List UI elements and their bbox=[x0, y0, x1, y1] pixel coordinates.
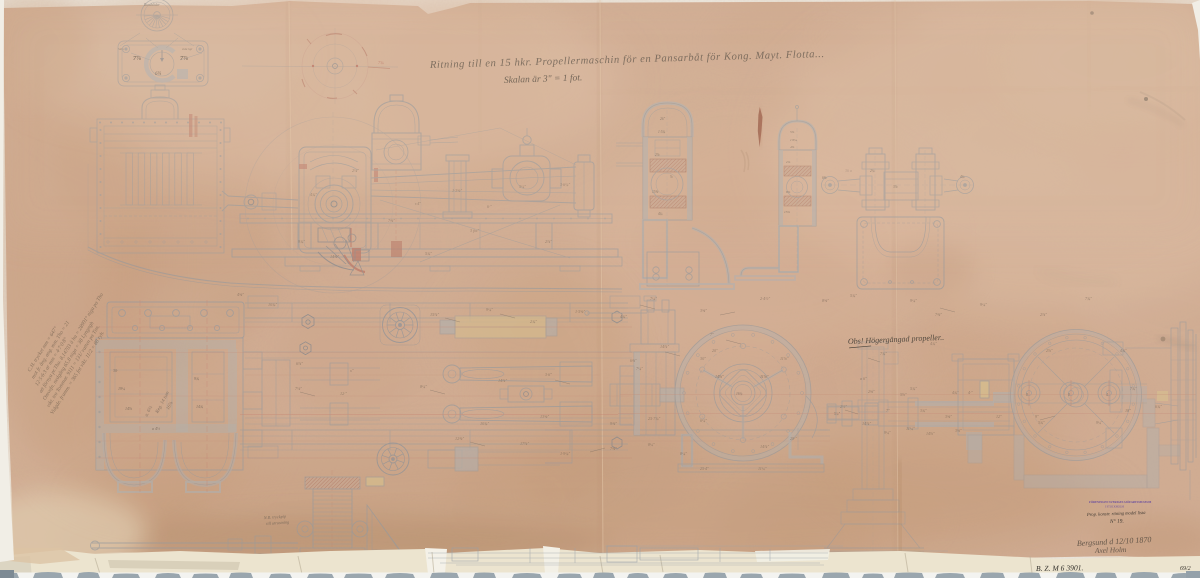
svg-text:FÖRENINGEN SVERIGES SJÖFARTSMU: FÖRENINGEN SVERIGES SJÖFARTSMUSEUM bbox=[1089, 499, 1152, 504]
svg-text:B. Z. M 6 3901.: B. Z. M 6 3901. bbox=[1036, 563, 1084, 573]
svg-text:Axel Holm: Axel Holm bbox=[1094, 545, 1127, 555]
svg-text:69/2: 69/2 bbox=[1180, 566, 1191, 572]
svg-text:N° 19.: N° 19. bbox=[1109, 518, 1124, 526]
svg-text:I STOCKHOLM: I STOCKHOLM bbox=[1105, 506, 1124, 509]
